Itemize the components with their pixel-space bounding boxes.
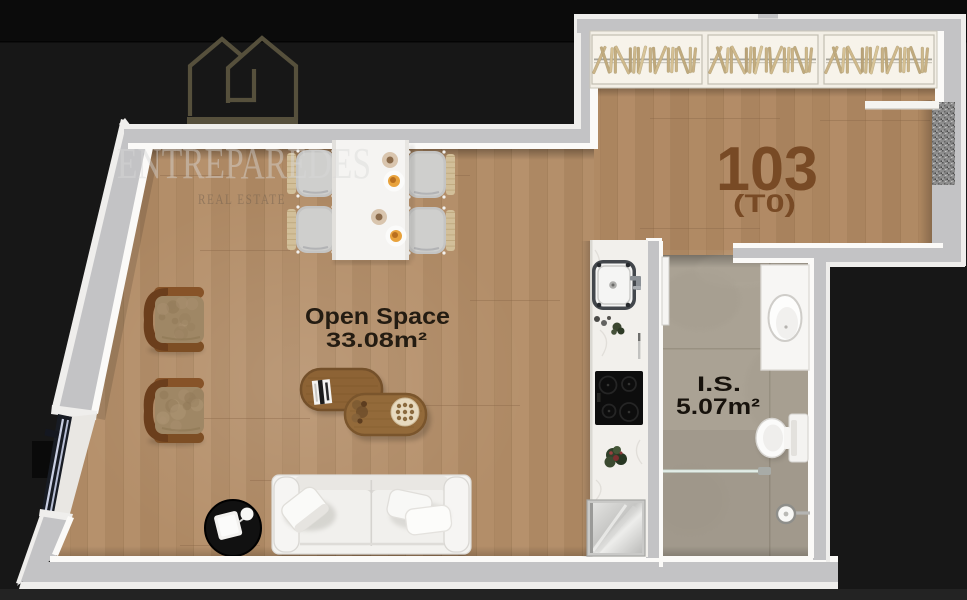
svg-text:5.07m²: 5.07m² bbox=[676, 394, 760, 419]
svg-text:ENTREPAREDES: ENTREPAREDES bbox=[117, 139, 371, 188]
svg-text:33.08m²: 33.08m² bbox=[326, 329, 427, 352]
svg-text:Open Space: Open Space bbox=[305, 303, 450, 329]
svg-text:I.S.: I.S. bbox=[697, 373, 741, 396]
svg-text:REAL ESTATE: REAL ESTATE bbox=[198, 192, 286, 208]
svg-text:(T0): (T0) bbox=[733, 190, 796, 218]
